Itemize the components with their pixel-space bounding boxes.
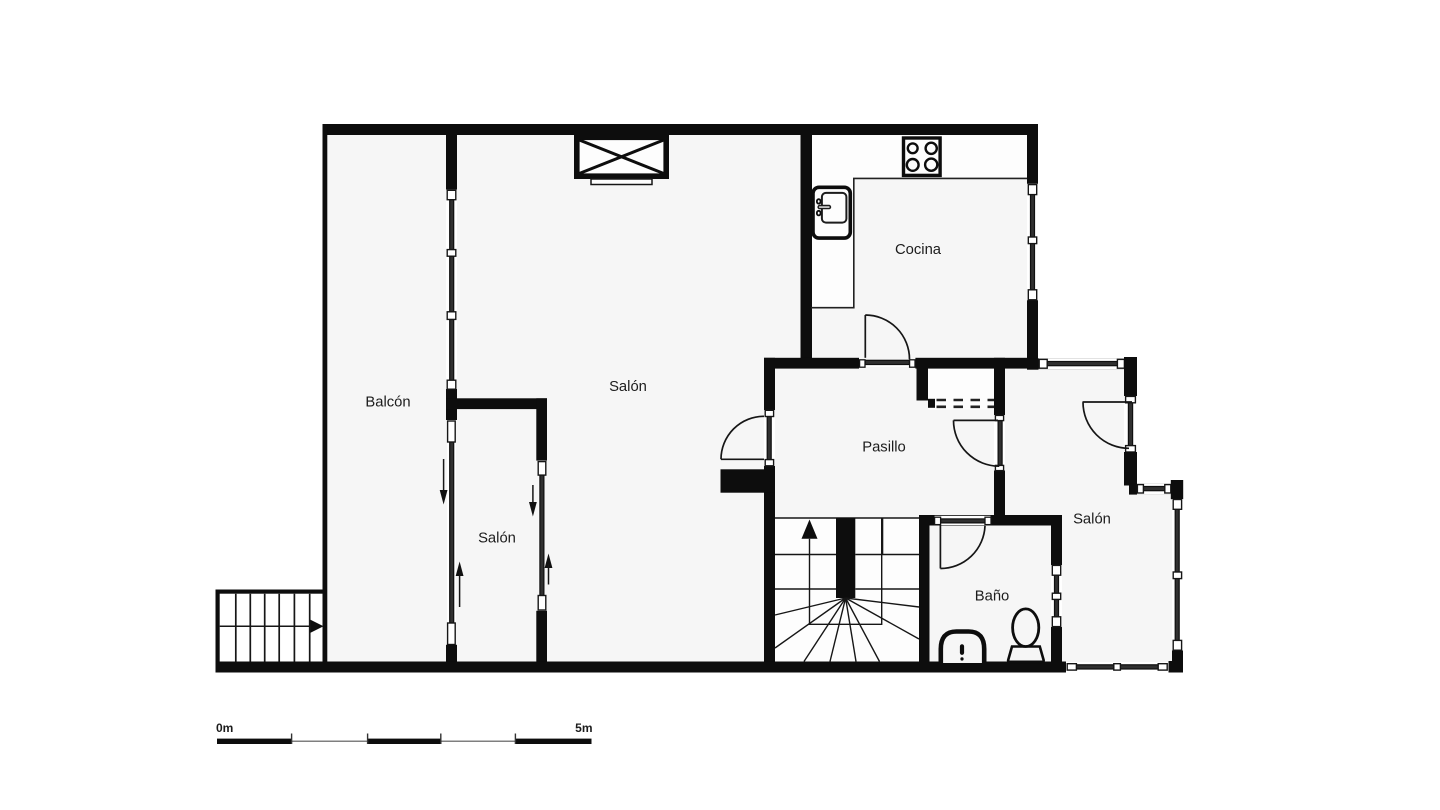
svg-text:Baño: Baño (975, 589, 1010, 605)
svg-text:Balcón: Balcón (365, 395, 410, 411)
svg-text:Salón: Salón (609, 379, 647, 395)
svg-text:0m: 0m (216, 721, 233, 735)
svg-text:Pasillo: Pasillo (862, 440, 906, 456)
svg-text:Salón: Salón (1073, 512, 1111, 528)
svg-text:Salón: Salón (478, 531, 516, 547)
svg-text:5m: 5m (575, 721, 592, 735)
svg-text:Cocina: Cocina (895, 242, 942, 258)
